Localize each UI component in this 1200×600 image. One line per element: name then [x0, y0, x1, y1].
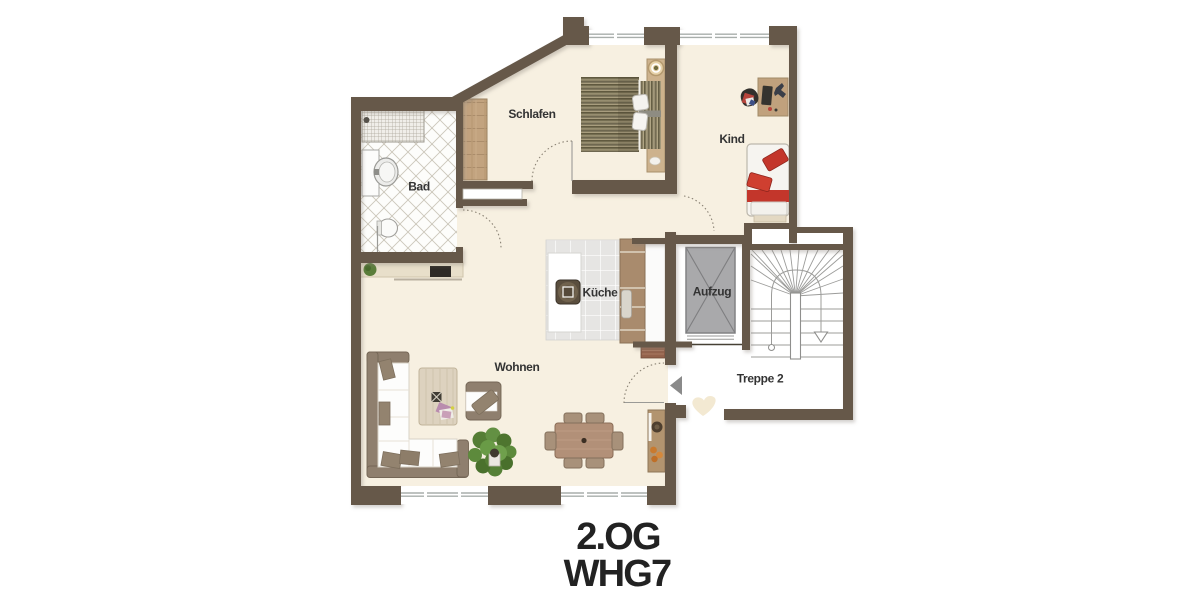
- svg-text:Kind: Kind: [719, 132, 744, 146]
- svg-text:Aufzug: Aufzug: [693, 285, 732, 299]
- svg-text:2.OG: 2.OG: [576, 516, 660, 558]
- svg-text:Bad: Bad: [408, 180, 430, 194]
- svg-text:Küche: Küche: [583, 286, 619, 300]
- svg-text:Treppe 2: Treppe 2: [737, 372, 784, 386]
- svg-text:Wohnen: Wohnen: [494, 360, 539, 374]
- svg-text:WHG7: WHG7: [564, 553, 671, 595]
- svg-text:Schlafen: Schlafen: [508, 107, 555, 121]
